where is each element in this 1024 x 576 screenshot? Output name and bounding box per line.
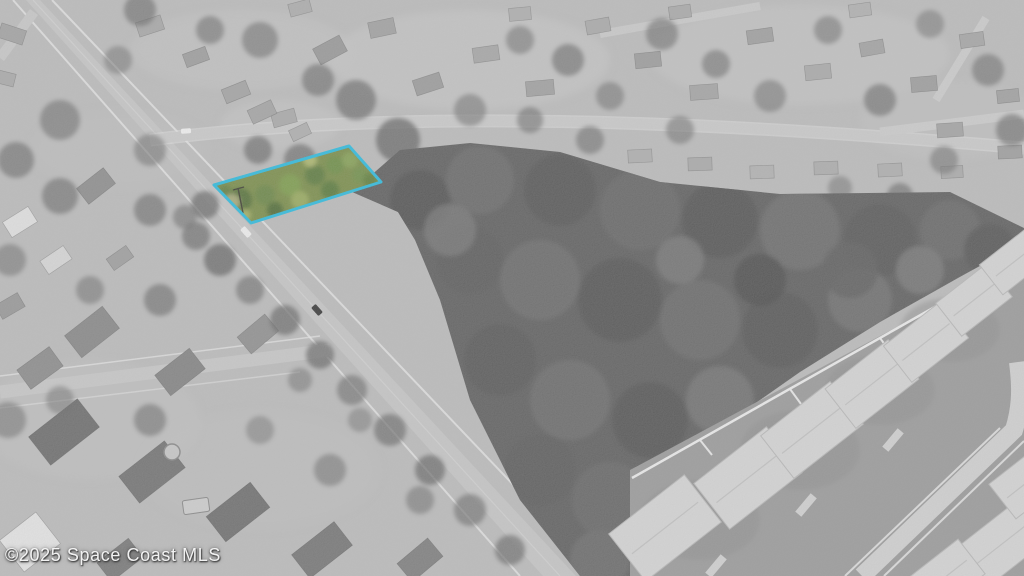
aerial-photo: ©2025 Space Coast MLS <box>0 0 1024 576</box>
aerial-scene <box>0 0 1024 576</box>
watermark: ©2025 Space Coast MLS <box>5 545 221 566</box>
film-grain-overlay <box>0 0 1024 576</box>
